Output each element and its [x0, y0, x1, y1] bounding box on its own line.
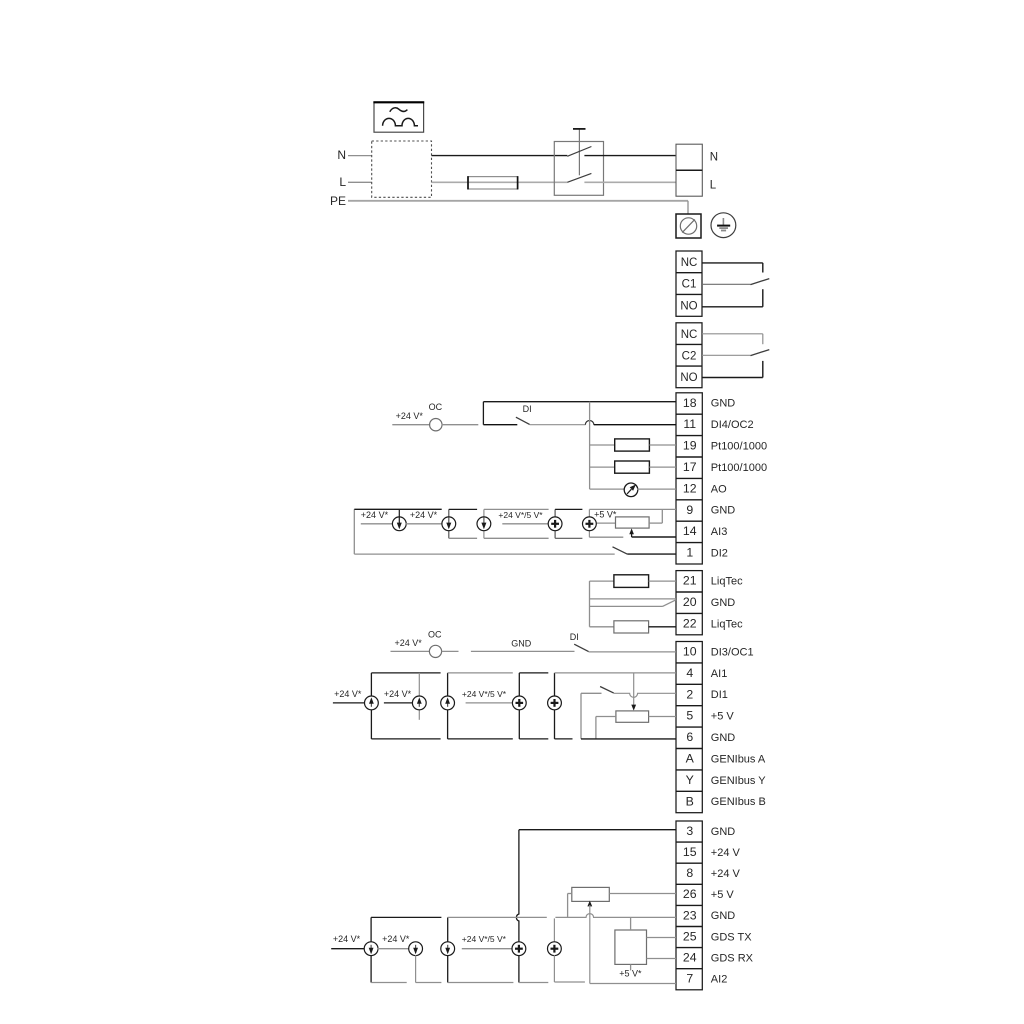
svg-text:20: 20: [683, 595, 697, 609]
svg-text:GENIbus B: GENIbus B: [711, 796, 766, 808]
svg-text:GENIbus A: GENIbus A: [711, 753, 766, 765]
svg-text:LiqTec: LiqTec: [711, 576, 743, 588]
svg-text:21: 21: [683, 574, 697, 588]
svg-text:7: 7: [686, 972, 693, 986]
svg-text:A: A: [686, 752, 695, 766]
svg-text:NC: NC: [681, 329, 698, 341]
svg-text:18: 18: [683, 396, 697, 410]
svg-text:2: 2: [686, 687, 693, 701]
svg-text:+24 V*: +24 V*: [384, 689, 412, 699]
svg-text:6: 6: [686, 730, 693, 744]
svg-text:3: 3: [686, 824, 693, 838]
svg-text:+5 V*: +5 V*: [619, 969, 642, 979]
svg-text:+24 V*/5 V*: +24 V*/5 V*: [498, 510, 543, 520]
svg-text:DI: DI: [523, 404, 532, 414]
svg-text:GND: GND: [711, 826, 736, 838]
svg-text:25: 25: [683, 929, 697, 943]
svg-text:26: 26: [683, 887, 697, 901]
svg-text:11: 11: [683, 417, 696, 431]
svg-text:+5 V: +5 V: [711, 711, 735, 723]
svg-text:+24 V*: +24 V*: [396, 411, 424, 421]
svg-text:NC: NC: [681, 257, 698, 269]
svg-text:14: 14: [683, 524, 697, 538]
svg-text:22: 22: [683, 616, 697, 630]
svg-text:12: 12: [683, 481, 697, 495]
svg-text:AI3: AI3: [711, 526, 728, 538]
svg-text:DI1: DI1: [711, 689, 728, 701]
svg-text:GDS TX: GDS TX: [711, 931, 752, 943]
svg-text:GND: GND: [711, 597, 736, 609]
svg-text:GND: GND: [711, 732, 736, 744]
svg-text:LiqTec: LiqTec: [711, 618, 743, 630]
svg-text:N: N: [337, 148, 346, 162]
svg-text:+24 V*: +24 V*: [410, 510, 438, 520]
svg-text:C1: C1: [682, 279, 697, 291]
svg-text:DI4/OC2: DI4/OC2: [711, 419, 754, 431]
svg-text:AI2: AI2: [711, 973, 728, 985]
svg-text:OC: OC: [428, 630, 442, 640]
svg-text:+24 V: +24 V: [711, 868, 741, 880]
svg-text:GENIbus Y: GENIbus Y: [711, 775, 766, 787]
svg-text:+24 V*: +24 V*: [395, 638, 423, 648]
svg-text:C2: C2: [682, 351, 697, 363]
svg-text:NO: NO: [680, 300, 697, 312]
svg-text:AO: AO: [711, 483, 727, 495]
svg-text:Pt100/1000: Pt100/1000: [711, 462, 767, 474]
svg-text:4: 4: [686, 666, 693, 680]
svg-text:OC: OC: [429, 402, 443, 412]
svg-text:+24 V*/5 V*: +24 V*/5 V*: [462, 934, 507, 944]
svg-text:23: 23: [683, 908, 697, 922]
svg-text:NO: NO: [680, 372, 697, 384]
svg-text:GND: GND: [711, 398, 736, 410]
svg-text:+24 V*: +24 V*: [333, 934, 361, 944]
svg-text:+24 V: +24 V: [711, 847, 741, 859]
svg-text:Pt100/1000: Pt100/1000: [711, 441, 767, 453]
svg-text:L: L: [710, 180, 717, 192]
svg-text:DI3/OC1: DI3/OC1: [711, 646, 754, 658]
svg-text:+5 V: +5 V: [711, 889, 735, 901]
svg-text:24: 24: [683, 950, 697, 964]
svg-text:15: 15: [683, 845, 697, 859]
svg-text:10: 10: [683, 645, 697, 659]
svg-text:B: B: [686, 794, 694, 808]
svg-text:+24 V*: +24 V*: [361, 510, 389, 520]
svg-text:PE: PE: [330, 194, 346, 208]
svg-text:1: 1: [686, 546, 693, 560]
svg-text:N: N: [710, 152, 718, 164]
svg-text:17: 17: [683, 460, 697, 474]
svg-text:Y: Y: [686, 773, 694, 787]
svg-text:19: 19: [683, 439, 697, 453]
svg-text:GDS RX: GDS RX: [711, 952, 754, 964]
svg-text:AI1: AI1: [711, 668, 728, 680]
svg-text:DI2: DI2: [711, 548, 728, 560]
svg-text:GND: GND: [511, 638, 532, 648]
svg-text:+5 V*: +5 V*: [594, 509, 617, 519]
svg-text:L: L: [339, 175, 346, 189]
svg-text:8: 8: [686, 866, 693, 880]
svg-text:GND: GND: [711, 910, 736, 922]
svg-text:+24 V*: +24 V*: [334, 689, 362, 699]
svg-text:9: 9: [686, 503, 693, 517]
svg-text:5: 5: [686, 709, 693, 723]
svg-text:+24 V*: +24 V*: [382, 934, 410, 944]
svg-text:+24 V*/5 V*: +24 V*/5 V*: [462, 689, 507, 699]
svg-text:DI: DI: [570, 632, 579, 642]
svg-text:GND: GND: [711, 505, 736, 517]
